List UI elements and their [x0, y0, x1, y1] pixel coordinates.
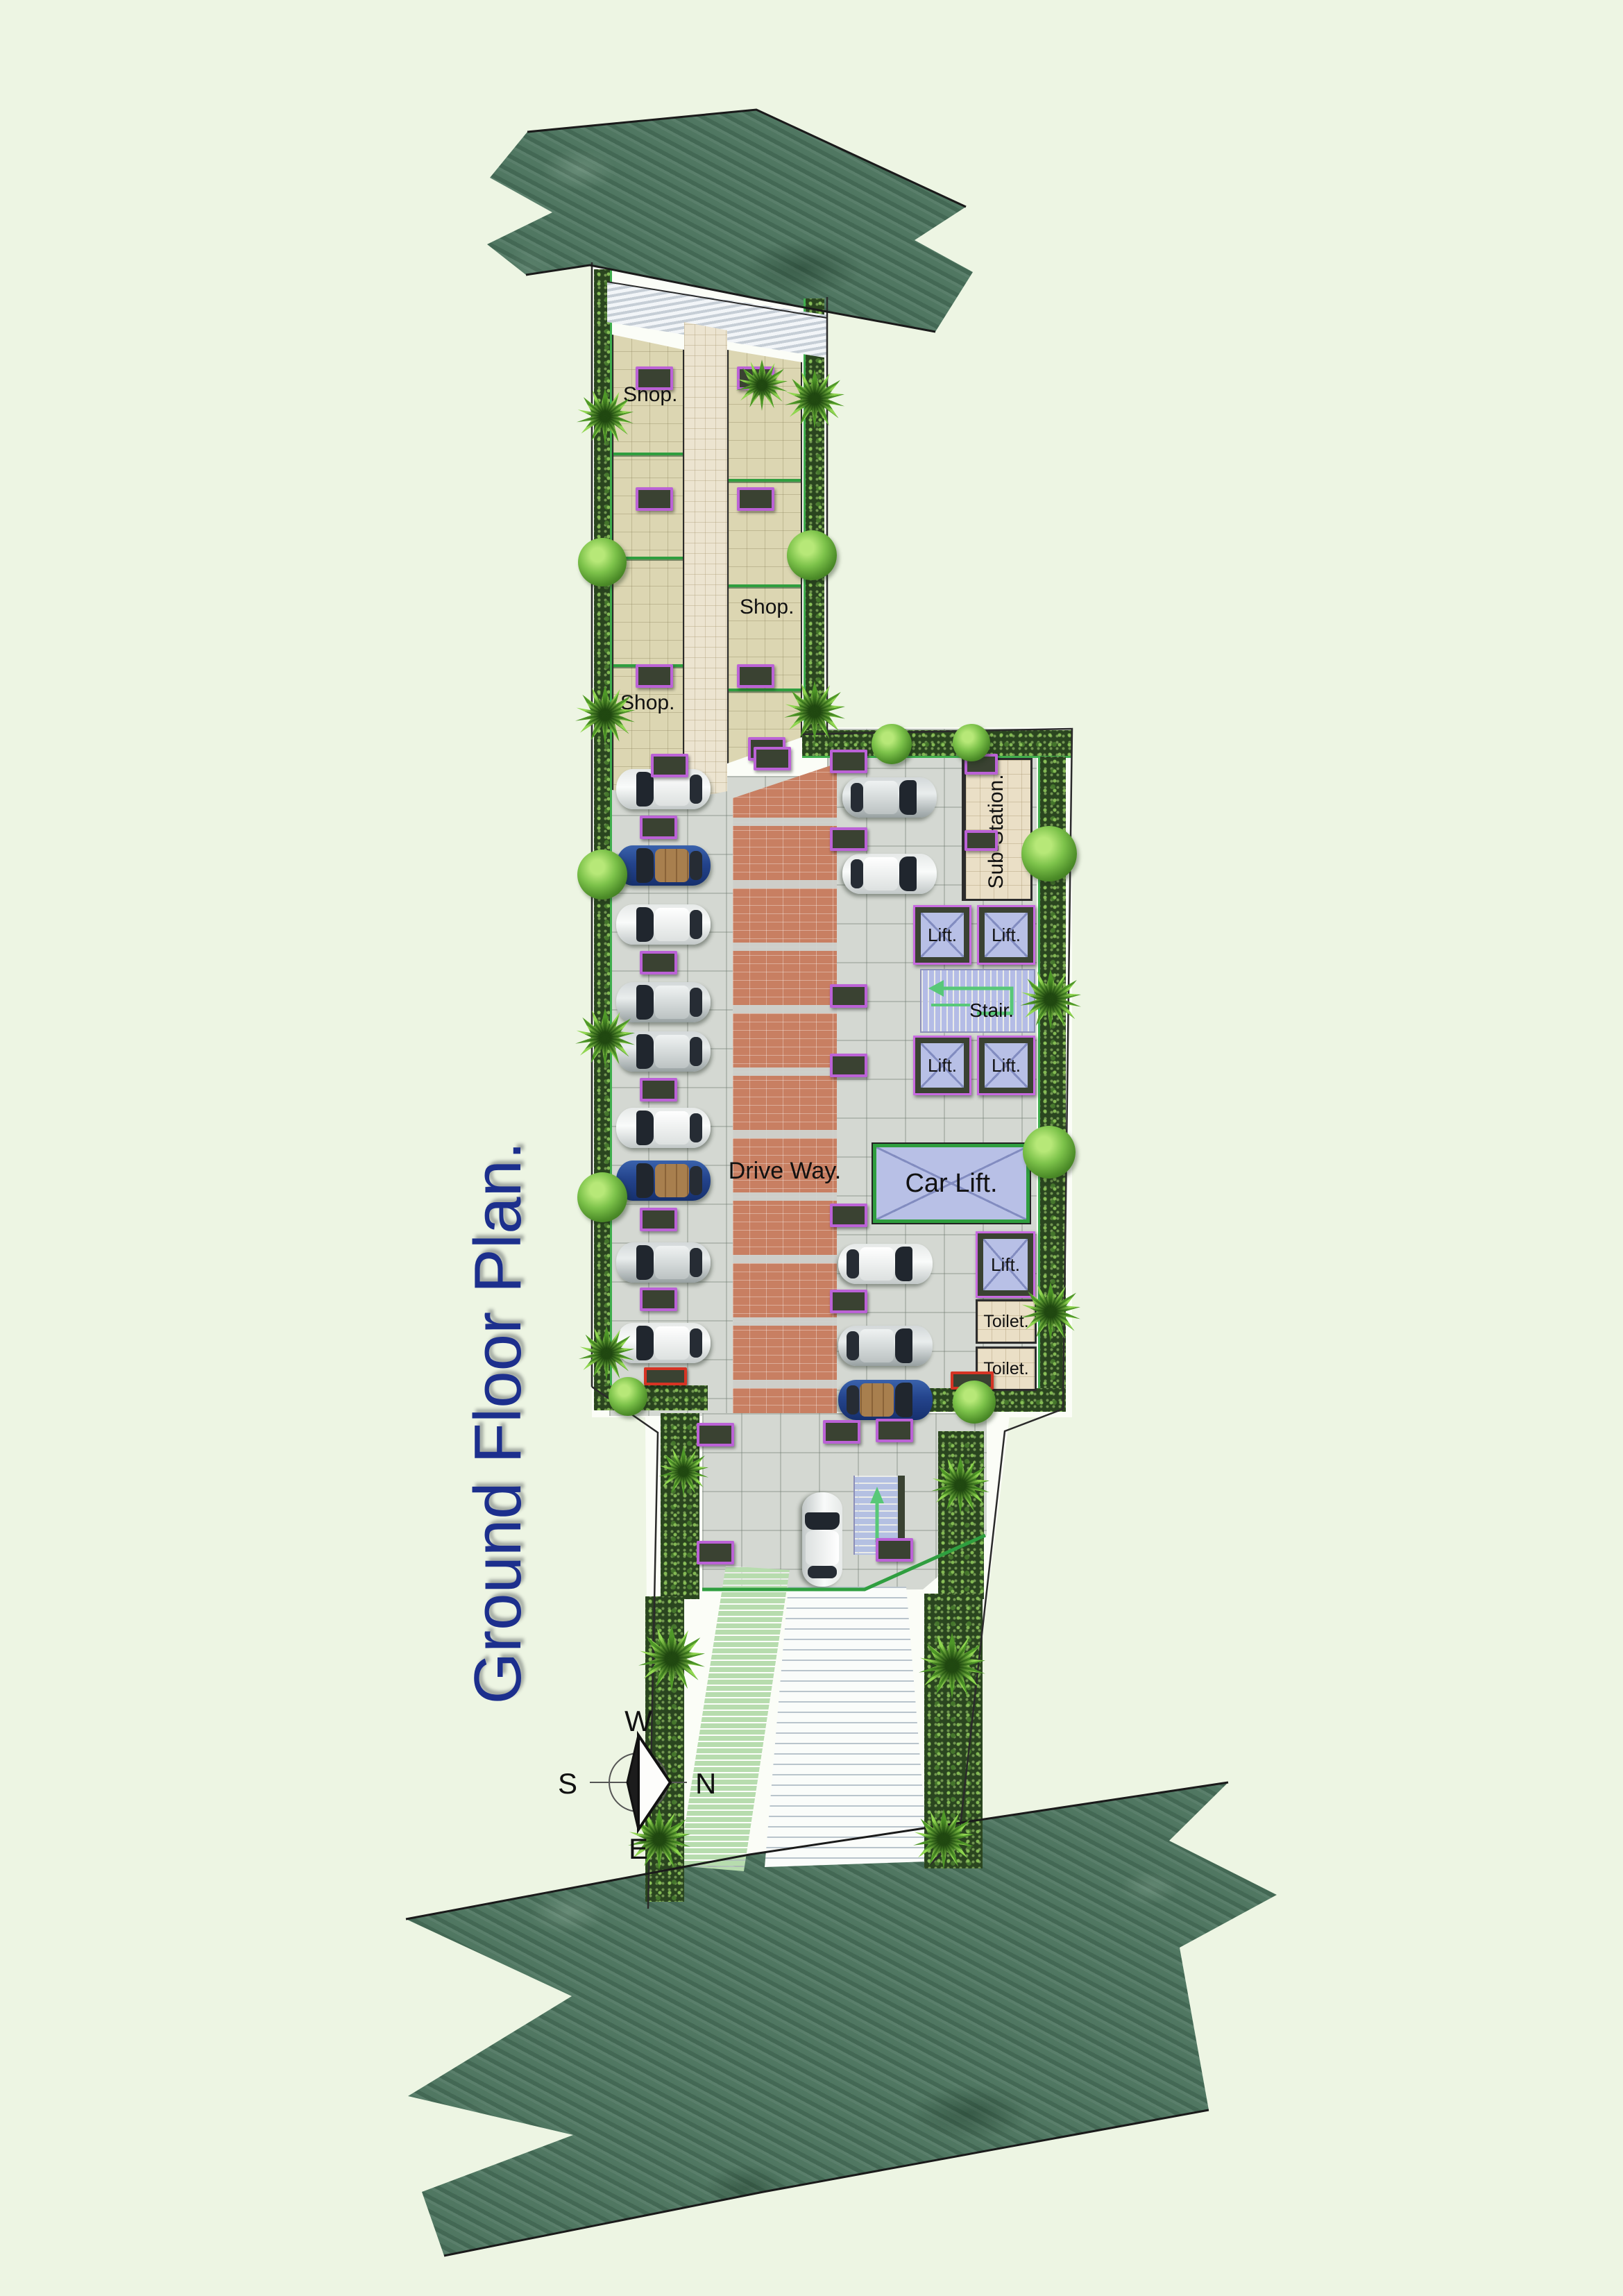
- door-marker: [754, 747, 791, 770]
- door-marker: [830, 750, 867, 773]
- tree: [1021, 826, 1077, 881]
- floor-plan-canvas: Drive Way. Shop. Shop. Shop. Sub-Station…: [0, 0, 1623, 2296]
- door-marker: [651, 754, 688, 777]
- door-marker: [876, 1419, 913, 1442]
- door-marker: [640, 816, 677, 839]
- driveway: [733, 763, 837, 1454]
- door-marker: [640, 951, 677, 974]
- door-marker: [830, 1290, 867, 1313]
- car-left-5: [616, 1031, 711, 1072]
- hedge-entrance-left: [661, 1413, 699, 1599]
- door-marker: [636, 664, 673, 688]
- door-marker: [830, 1204, 867, 1227]
- lift-block-lower: Lift. Lift.: [913, 1036, 1035, 1095]
- hedge-entrance-right: [938, 1431, 984, 1599]
- car-right-5: [838, 1380, 933, 1420]
- shop-divider: [729, 479, 801, 482]
- door-marker: [965, 830, 998, 851]
- tree: [578, 538, 627, 586]
- car-left-3: [616, 904, 711, 945]
- compass-rose: W N E S: [548, 1694, 729, 1874]
- door-marker: [830, 984, 867, 1008]
- shop-label: Shop.: [740, 596, 794, 619]
- tree: [609, 1377, 647, 1416]
- lift-room-a1: Lift.: [913, 905, 971, 965]
- door-marker: [636, 366, 673, 390]
- lift-room-c: Lift.: [976, 1231, 1035, 1298]
- tree: [953, 1381, 996, 1424]
- tree: [577, 850, 627, 900]
- lift-cab: Lift.: [983, 1239, 1028, 1290]
- compass-east: E: [548, 1832, 729, 1866]
- lift-label: Lift.: [921, 913, 964, 957]
- tree: [872, 724, 912, 764]
- tree: [1023, 1126, 1076, 1179]
- lift-room-a2: Lift.: [977, 905, 1035, 965]
- car-left-4: [616, 982, 711, 1022]
- shops-corridor: [684, 314, 727, 800]
- lift-cab: Lift.: [921, 1043, 964, 1088]
- room-sub-station: Sub-Station.: [962, 758, 1033, 901]
- tree: [953, 724, 990, 761]
- shop-divider: [729, 689, 801, 691]
- door-marker: [636, 487, 673, 511]
- lift-cab: Lift.: [921, 913, 964, 957]
- car-left-6: [616, 1108, 711, 1148]
- lift-room-b1: Lift.: [913, 1036, 971, 1095]
- door-marker: [640, 1078, 677, 1101]
- tree: [577, 1172, 627, 1222]
- lift-label: Lift.: [921, 1043, 964, 1088]
- car-right-2: [842, 854, 937, 894]
- door-marker: [830, 827, 867, 851]
- lift-cab: Lift.: [985, 1043, 1028, 1088]
- door-marker: [876, 1538, 913, 1562]
- door-marker: [640, 1288, 677, 1311]
- lift-cab: Lift.: [985, 913, 1028, 957]
- shop-divider: [613, 453, 683, 455]
- lift-label: Lift.: [985, 913, 1028, 957]
- car-lift-label: Car Lift.: [876, 1147, 1026, 1219]
- car-right-3: [838, 1244, 933, 1284]
- stair-room: Stair.: [920, 969, 1035, 1033]
- page-title: Ground Floor Plan.: [450, 1048, 547, 1798]
- hedge-bottom-right: [930, 1388, 1066, 1412]
- door-marker: [830, 1054, 867, 1077]
- toilet-label: Toilet.: [978, 1301, 1035, 1342]
- car-right-1: [842, 777, 937, 818]
- ramp-striped: [763, 1587, 930, 1867]
- compass-north: N: [695, 1767, 716, 1800]
- compass-south: S: [558, 1767, 577, 1800]
- driveway-label: Drive Way.: [715, 1158, 854, 1185]
- door-marker: [697, 1541, 734, 1564]
- lift-block-upper: Lift. Lift.: [913, 905, 1035, 965]
- car-left-9: [616, 1323, 711, 1363]
- lift-room-b2: Lift.: [977, 1036, 1035, 1095]
- car-entrance: [802, 1492, 842, 1587]
- car-right-4: [838, 1326, 933, 1366]
- lift-label: Lift.: [983, 1239, 1028, 1290]
- car-left-2: [616, 845, 711, 886]
- door-marker: [737, 664, 774, 688]
- lift-label: Lift.: [985, 1043, 1028, 1088]
- door-marker: [640, 1208, 677, 1231]
- car-left-8: [616, 1242, 711, 1283]
- car-lift-room: Car Lift.: [873, 1144, 1030, 1223]
- door-marker: [737, 487, 774, 511]
- car-left-7: [616, 1160, 711, 1201]
- door-marker: [823, 1420, 860, 1444]
- compass-west: W: [548, 1705, 729, 1738]
- red-exit-marker: [644, 1367, 687, 1385]
- tree: [787, 530, 837, 580]
- shop-divider: [729, 584, 801, 587]
- stair-label: Stair.: [949, 990, 1034, 1031]
- door-marker: [697, 1423, 734, 1446]
